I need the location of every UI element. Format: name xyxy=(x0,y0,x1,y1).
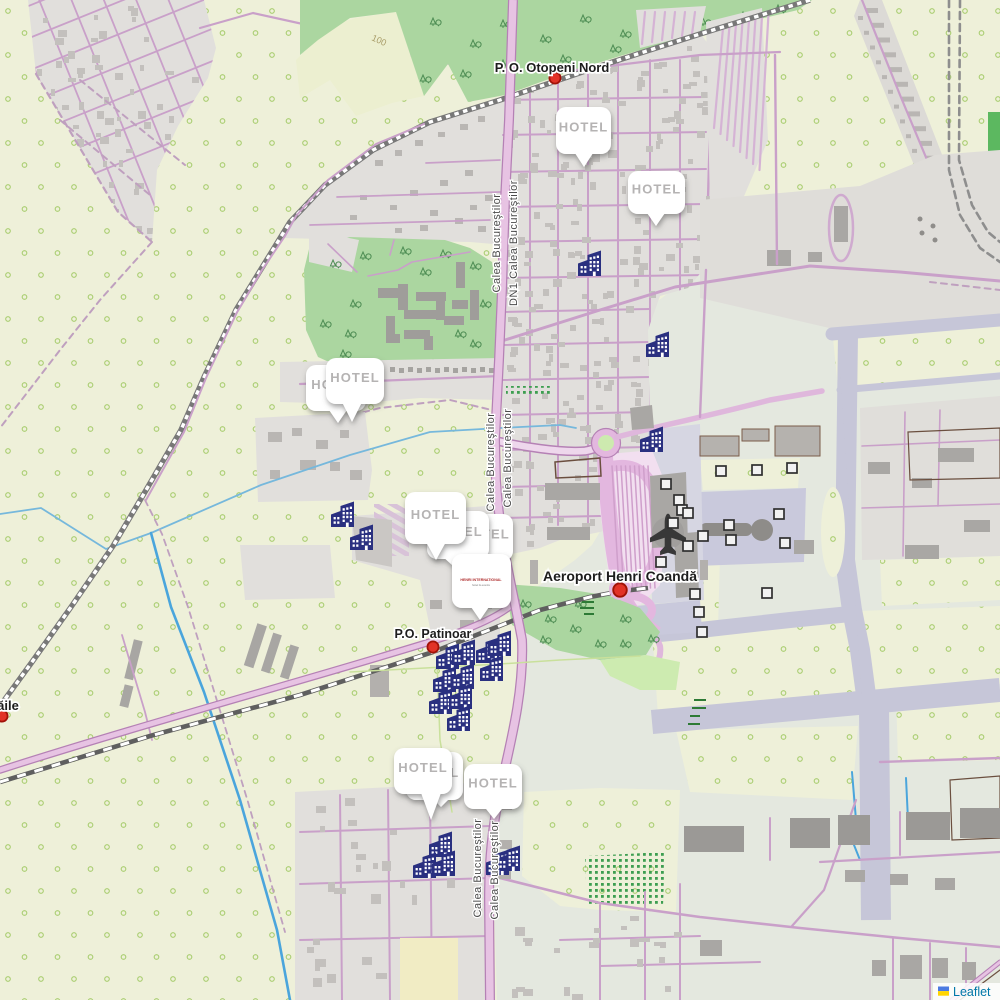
svg-text:Calea Bucureştilor: Calea Bucureştilor xyxy=(472,819,484,918)
svg-text:Calea Bucureştilor: Calea Bucureştilor xyxy=(489,821,501,920)
svg-text:P.O. Patinoar: P.O. Patinoar xyxy=(395,627,472,641)
svg-text:Aeroport Henri Coandă: Aeroport Henri Coandă xyxy=(543,568,697,584)
svg-text:Leaflet: Leaflet xyxy=(953,985,991,999)
svg-text:DN1 Calea Bucureştilor: DN1 Calea Bucureştilor xyxy=(508,180,520,306)
svg-text:Calea Bucureştilor: Calea Bucureştilor xyxy=(485,413,497,512)
svg-text:Calea Bucureştilor: Calea Bucureştilor xyxy=(502,409,514,508)
svg-text:HOTEL: HOTEL xyxy=(411,507,461,522)
svg-text:hotel & events: hotel & events xyxy=(472,583,490,587)
svg-text:HOTEL: HOTEL xyxy=(468,776,518,791)
svg-text:HOTEL: HOTEL xyxy=(398,760,448,775)
svg-text:HOTEL: HOTEL xyxy=(330,370,380,385)
svg-text:HOTEL: HOTEL xyxy=(559,120,609,135)
svg-text:ăile: ăile xyxy=(0,698,19,713)
svg-text:Calea Bucureştilor: Calea Bucureştilor xyxy=(491,194,503,293)
svg-text:P. O. Otopeni Nord: P. O. Otopeni Nord xyxy=(495,60,610,75)
svg-text:HENRI INTERNATIONAL: HENRI INTERNATIONAL xyxy=(460,578,502,582)
svg-text:HOTEL: HOTEL xyxy=(632,182,682,197)
